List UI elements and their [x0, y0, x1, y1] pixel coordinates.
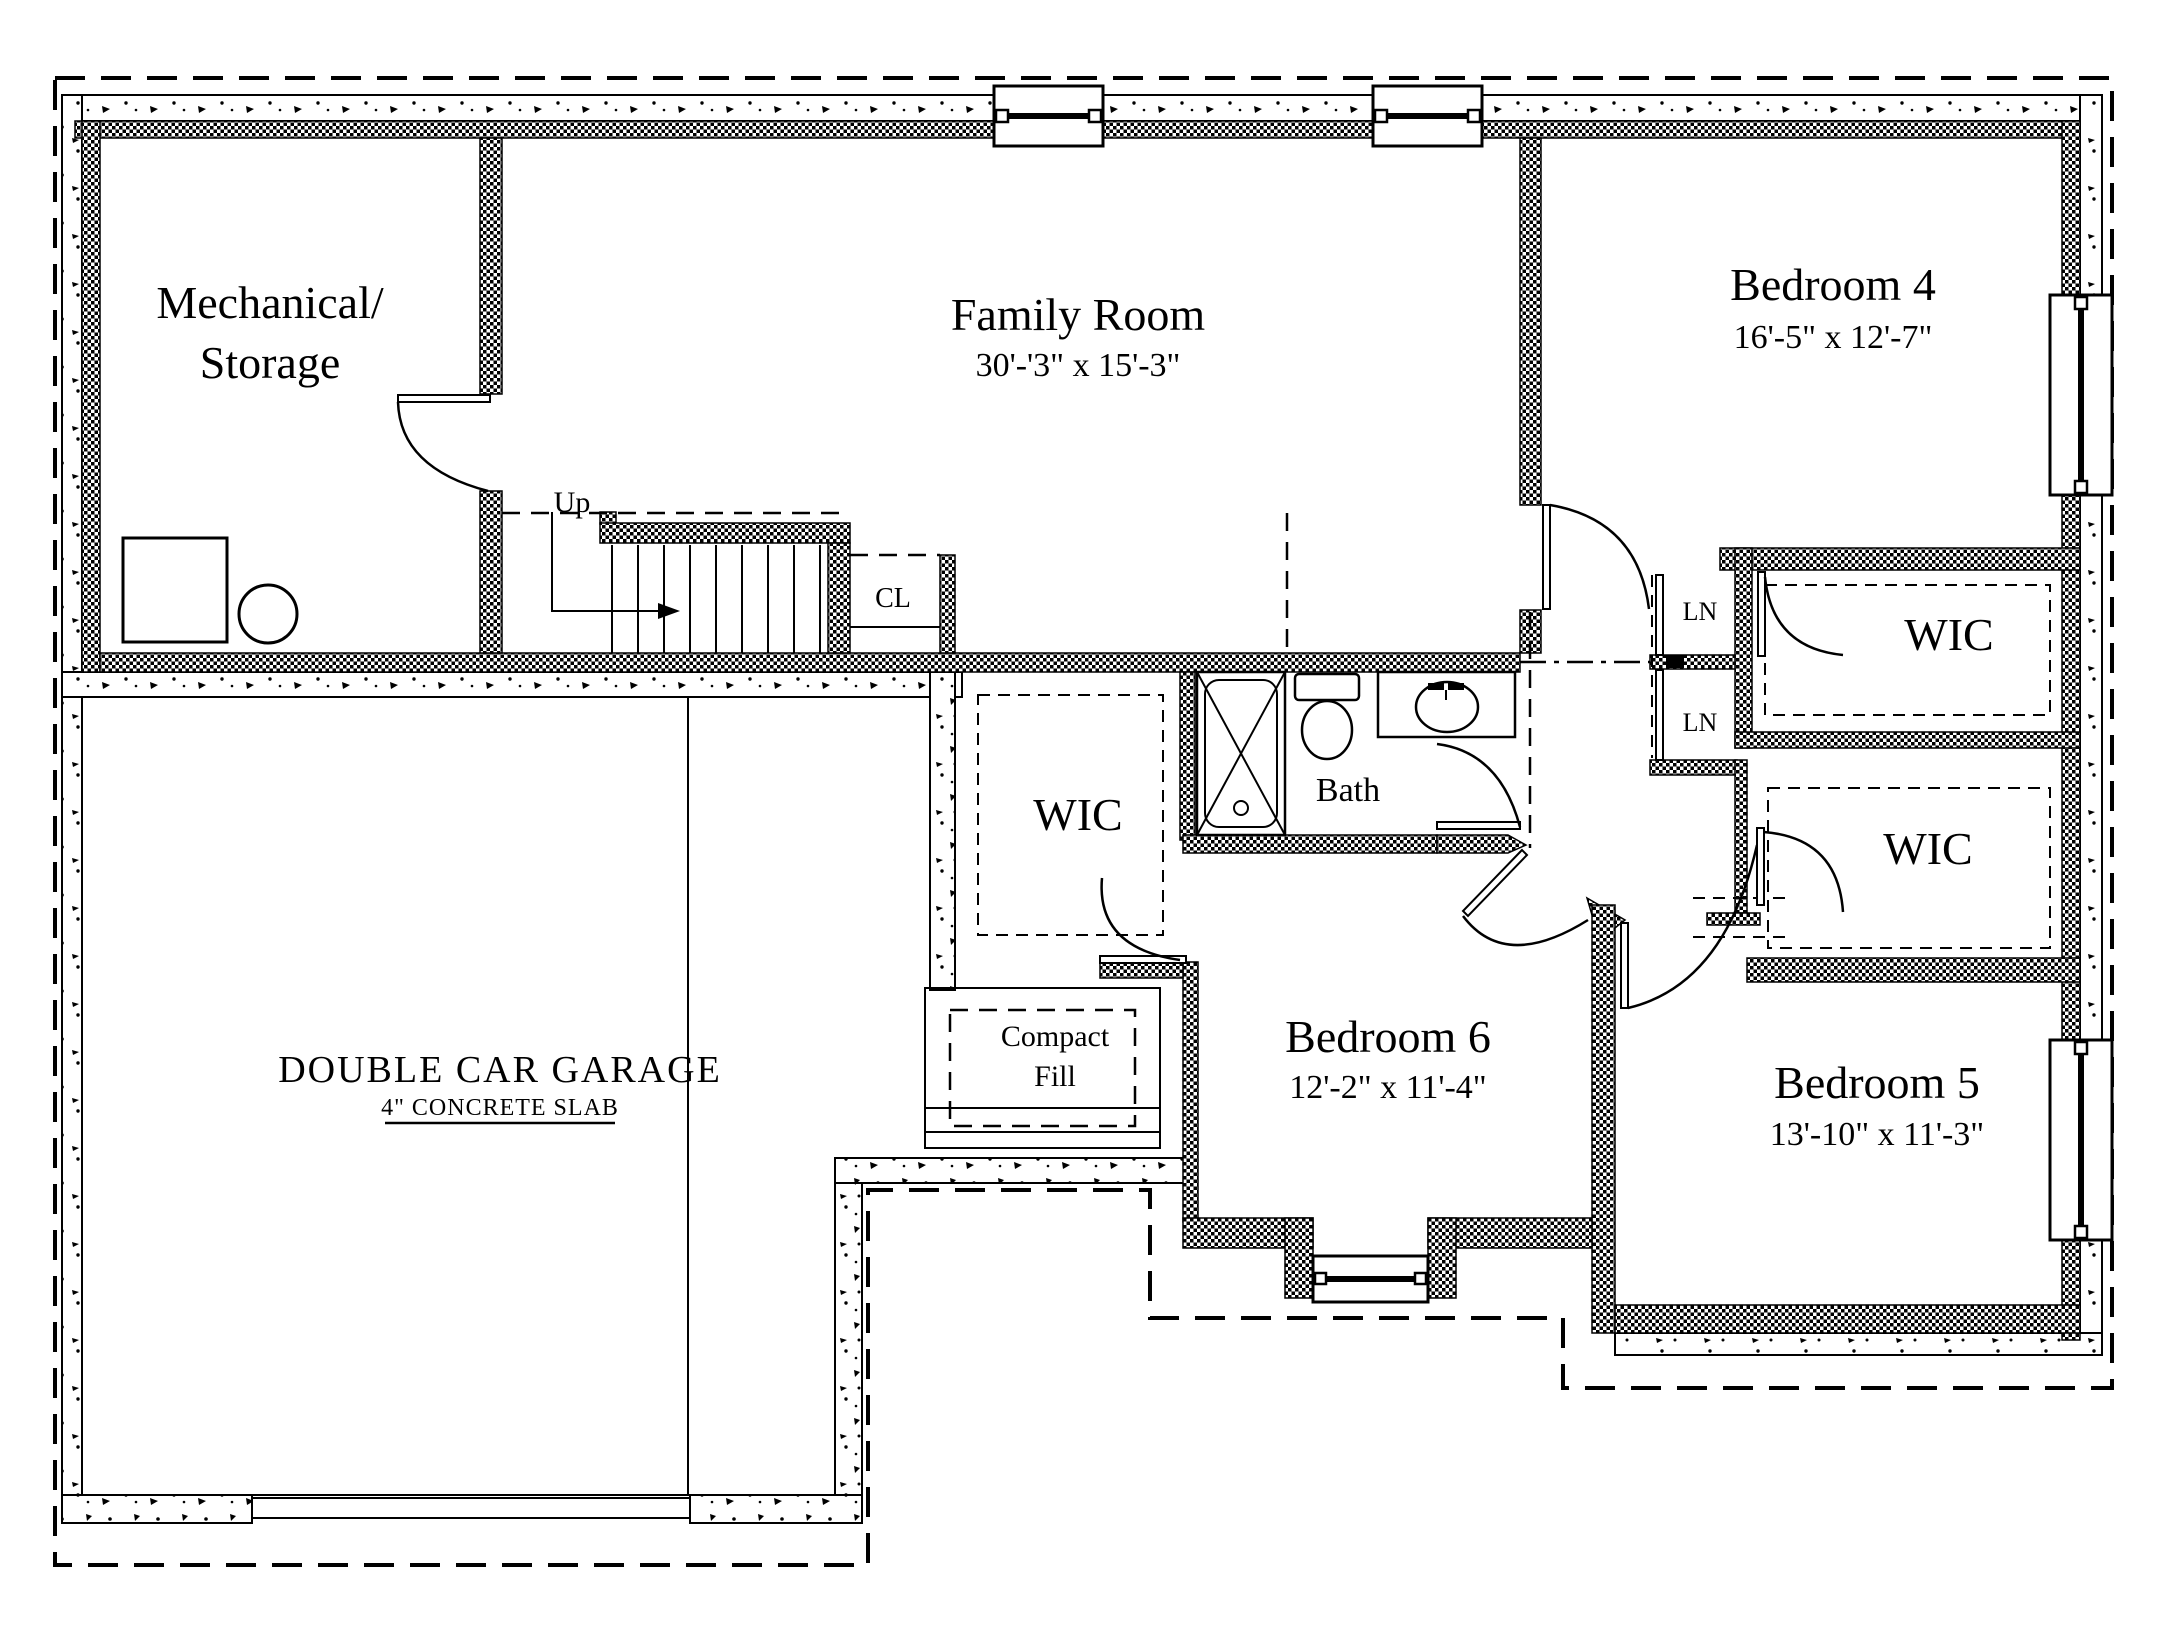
bedroom4-label: Bedroom 4 — [1730, 259, 1936, 310]
bedroom6-dims: 12'-2" x 11'-4" — [1289, 1069, 1486, 1106]
garage-slab-note: 4" CONCRETE SLAB — [381, 1095, 619, 1121]
family-room-window-1 — [994, 86, 1103, 146]
bedroom6-label: Bedroom 6 — [1285, 1011, 1491, 1062]
compact-fill-label-line2: Fill — [1034, 1060, 1076, 1093]
vanity-sink — [1378, 672, 1515, 737]
shower — [1197, 672, 1285, 835]
bath-label: Bath — [1316, 772, 1380, 809]
family-room-label: Family Room — [951, 289, 1206, 340]
bedroom4-dims: 16'-5" x 12'-7" — [1734, 319, 1933, 356]
mechanical-storage-label-line2: Storage — [200, 337, 341, 388]
bedroom5-dims: 13'-10" x 11'-3" — [1770, 1116, 1984, 1153]
closet-label: CL — [875, 583, 911, 614]
family-room-window-2 — [1373, 86, 1482, 146]
wic-left-label: WIC — [1033, 789, 1122, 840]
bedroom6-egress-window — [1313, 1256, 1428, 1302]
compact-fill-label-line1: Compact — [1001, 1020, 1110, 1053]
bedroom4-window — [2050, 295, 2112, 495]
bedroom5-window — [2050, 1040, 2112, 1240]
linen2-label: LN — [1683, 708, 1718, 737]
garage-label: DOUBLE CAR GARAGE — [278, 1049, 722, 1091]
linen1-label: LN — [1683, 597, 1718, 626]
family-room-dims: 30'-'3" x 15'-3" — [976, 347, 1181, 384]
wic-top-right-label: WIC — [1904, 609, 1993, 660]
mechanical-storage-label-line1: Mechanical/ — [156, 277, 384, 328]
wic-bottom-right-label: WIC — [1883, 823, 1972, 874]
floor-plan-drawing: Mechanical/ Storage Family Room 30'-'3" … — [0, 0, 2165, 1630]
bedroom5-label: Bedroom 5 — [1774, 1057, 1980, 1108]
floor-plan-page: Mechanical/ Storage Family Room 30'-'3" … — [0, 0, 2165, 1630]
stairs-up-label: Up — [554, 486, 591, 519]
